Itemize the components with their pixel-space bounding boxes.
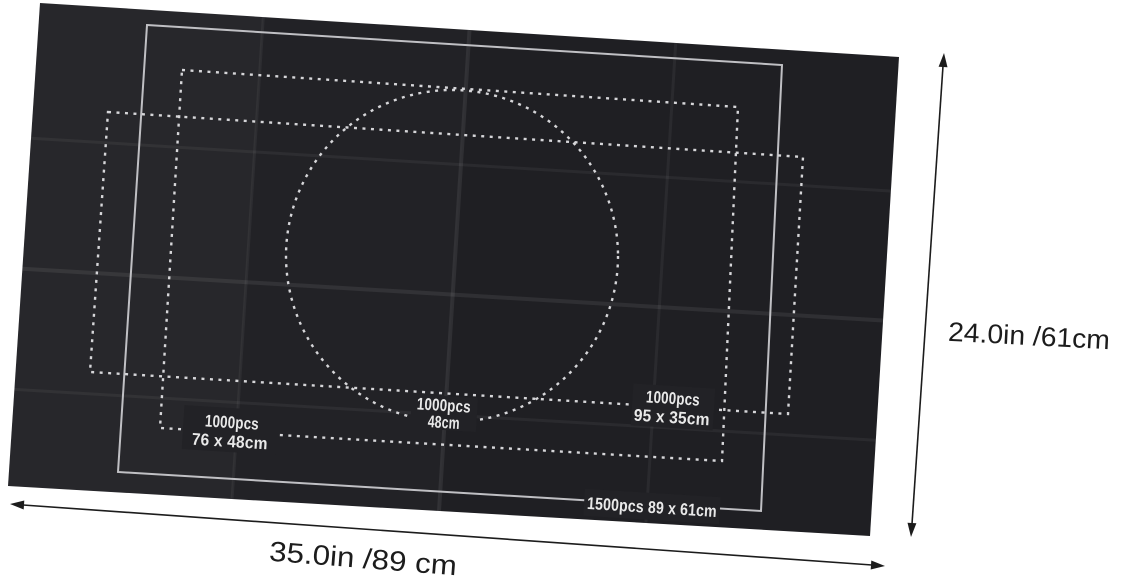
- width-arrow-left-head: [10, 501, 24, 510]
- width-arrow-right-head: [871, 561, 885, 570]
- height-dimension: 24.0in /61cm: [908, 53, 1111, 537]
- height-arrow-up-head: [939, 53, 948, 67]
- height-arrow-down-head: [908, 523, 917, 537]
- puzzle-mat-illustration: 1000pcs 76 x 48cm 1000pcs 48cm 1000pcs 9…: [0, 0, 1125, 579]
- width-dimension-label: 35.0in /89 cm: [268, 536, 458, 579]
- product-image: 1000pcs 76 x 48cm 1000pcs 48cm 1000pcs 9…: [0, 0, 1125, 579]
- label-48cm-size: 48cm: [427, 412, 460, 433]
- height-dimension-label: 24.0in /61cm: [947, 317, 1110, 355]
- height-arrow-line: [912, 66, 943, 524]
